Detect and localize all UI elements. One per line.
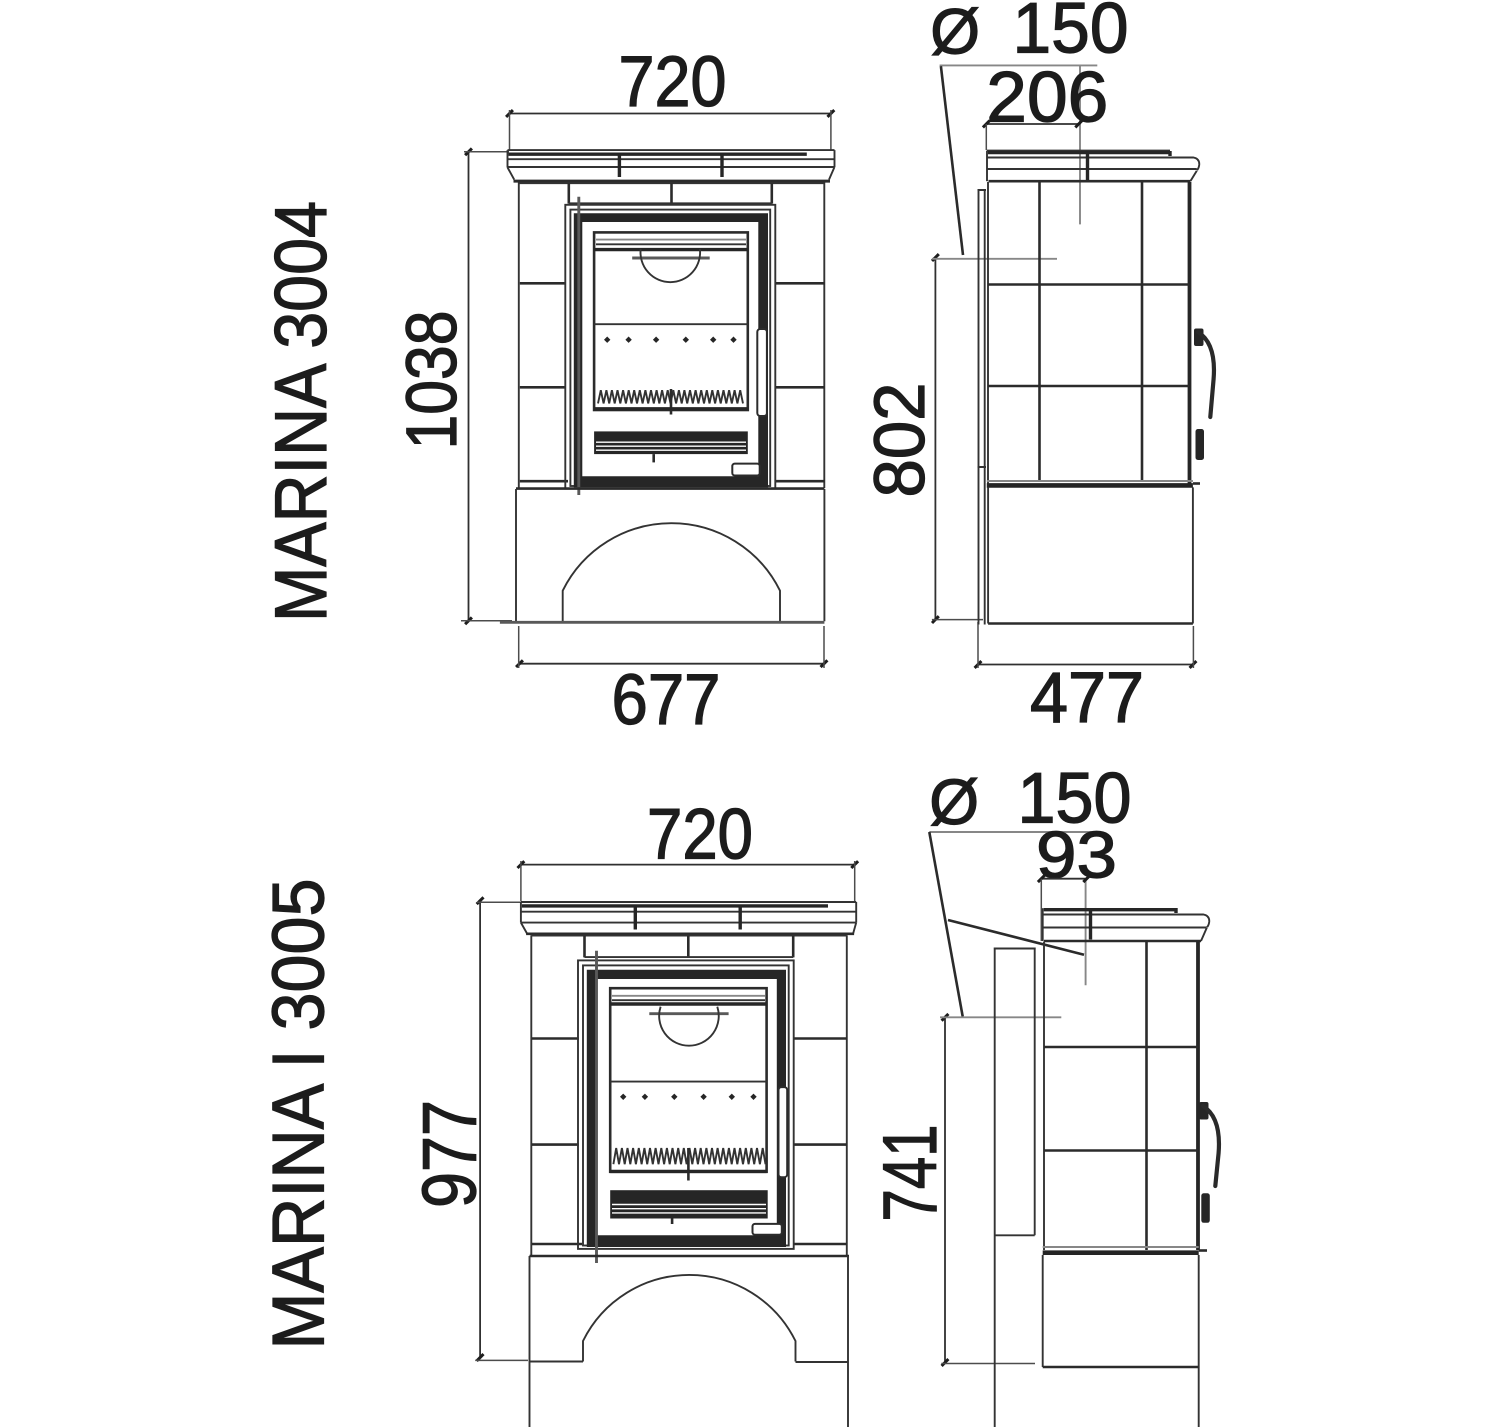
svg-text:802: 802	[861, 383, 940, 498]
svg-text:477: 477	[1030, 659, 1144, 738]
svg-text:Ø: Ø	[930, 0, 980, 68]
svg-text:720: 720	[619, 43, 727, 122]
svg-text:1038: 1038	[393, 311, 472, 450]
svg-text:720: 720	[647, 796, 753, 875]
svg-text:Ø: Ø	[929, 766, 979, 838]
svg-text:MARINA I 3005: MARINA I 3005	[259, 879, 340, 1350]
svg-text:93: 93	[1036, 818, 1117, 892]
svg-text:741: 741	[868, 1125, 953, 1222]
svg-text:677: 677	[612, 661, 721, 740]
svg-text:MARINA 3004: MARINA 3004	[261, 201, 342, 622]
svg-text:206: 206	[986, 58, 1108, 137]
